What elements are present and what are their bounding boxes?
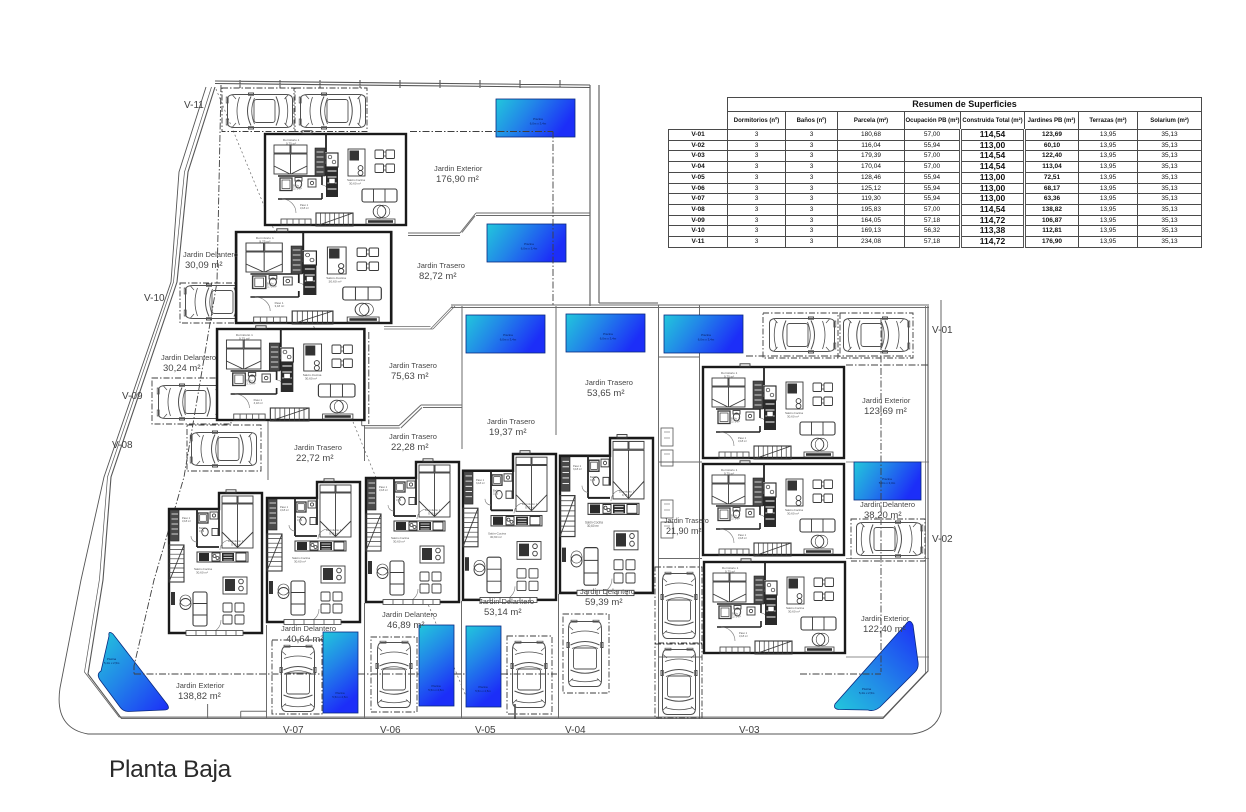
svg-text:V-03: V-03 bbox=[739, 725, 760, 736]
svg-text:V-11: V-11 bbox=[184, 100, 204, 111]
svg-text:22,72 m²: 22,72 m² bbox=[296, 453, 334, 464]
svg-text:Jardin Delantero: Jardin Delantero bbox=[281, 624, 336, 633]
svg-text:Jardin Trasero: Jardin Trasero bbox=[294, 443, 342, 452]
svg-text:Jardin Delantero: Jardin Delantero bbox=[183, 250, 238, 259]
svg-text:138,82 m²: 138,82 m² bbox=[178, 691, 221, 702]
svg-text:V-09: V-09 bbox=[122, 391, 143, 402]
svg-text:Jardin Trasero: Jardin Trasero bbox=[664, 518, 709, 525]
svg-text:5,4m x 2,5m: 5,4m x 2,5m bbox=[859, 691, 875, 695]
svg-text:V-02: V-02 bbox=[932, 534, 953, 545]
svg-text:V-10: V-10 bbox=[144, 293, 165, 304]
svg-text:53,65 m²: 53,65 m² bbox=[587, 388, 625, 399]
svg-text:V-05: V-05 bbox=[475, 725, 496, 736]
svg-text:38,20 m²: 38,20 m² bbox=[864, 510, 902, 521]
svg-text:Jardin Trasero: Jardin Trasero bbox=[389, 432, 437, 441]
svg-text:5,4m x 2,5m: 5,4m x 2,5m bbox=[104, 661, 120, 665]
svg-text:V-01: V-01 bbox=[932, 325, 953, 336]
svg-text:53,14 m²: 53,14 m² bbox=[484, 607, 522, 618]
svg-text:Jardin Exterior: Jardin Exterior bbox=[176, 681, 225, 690]
svg-text:82,72 m²: 82,72 m² bbox=[419, 271, 457, 282]
svg-text:V-04: V-04 bbox=[565, 725, 586, 736]
svg-text:V-08: V-08 bbox=[112, 440, 133, 451]
svg-text:Jardin Exterior: Jardin Exterior bbox=[861, 614, 910, 623]
svg-text:Jardin Delantero: Jardin Delantero bbox=[382, 610, 437, 619]
svg-text:176,90 m²: 176,90 m² bbox=[436, 174, 479, 185]
svg-text:40,64 m²: 40,64 m² bbox=[286, 634, 324, 645]
svg-text:Jardin Trasero: Jardin Trasero bbox=[487, 417, 535, 426]
svg-text:19,37 m²: 19,37 m² bbox=[489, 427, 527, 438]
svg-text:Jardin Delantero: Jardin Delantero bbox=[479, 597, 534, 606]
svg-text:V-06: V-06 bbox=[380, 725, 401, 736]
svg-text:59,39 m²: 59,39 m² bbox=[585, 597, 623, 608]
svg-text:V-07: V-07 bbox=[283, 725, 304, 736]
svg-text:Jardin Delantero: Jardin Delantero bbox=[860, 500, 915, 509]
svg-text:75,63 m²: 75,63 m² bbox=[391, 371, 429, 382]
svg-text:Jardin Trasero: Jardin Trasero bbox=[417, 261, 465, 270]
svg-text:122,40 m²: 122,40 m² bbox=[863, 624, 906, 635]
svg-text:30,24 m²: 30,24 m² bbox=[163, 363, 201, 374]
svg-text:21,90 m²: 21,90 m² bbox=[666, 526, 702, 536]
svg-text:Jardin Exterior: Jardin Exterior bbox=[434, 164, 483, 173]
svg-text:46,89 m²: 46,89 m² bbox=[387, 620, 425, 631]
svg-text:Jardin Trasero: Jardin Trasero bbox=[585, 378, 633, 387]
svg-text:Jardin Exterior: Jardin Exterior bbox=[862, 396, 911, 405]
svg-text:Jardin Trasero: Jardin Trasero bbox=[389, 361, 437, 370]
svg-text:Jardin Delantero: Jardin Delantero bbox=[580, 587, 635, 596]
svg-text:Jardin Delantero: Jardin Delantero bbox=[161, 353, 216, 362]
svg-text:123,69 m²: 123,69 m² bbox=[864, 406, 907, 417]
svg-text:22,28 m²: 22,28 m² bbox=[391, 442, 429, 453]
svg-text:30,09 m²: 30,09 m² bbox=[185, 260, 223, 271]
